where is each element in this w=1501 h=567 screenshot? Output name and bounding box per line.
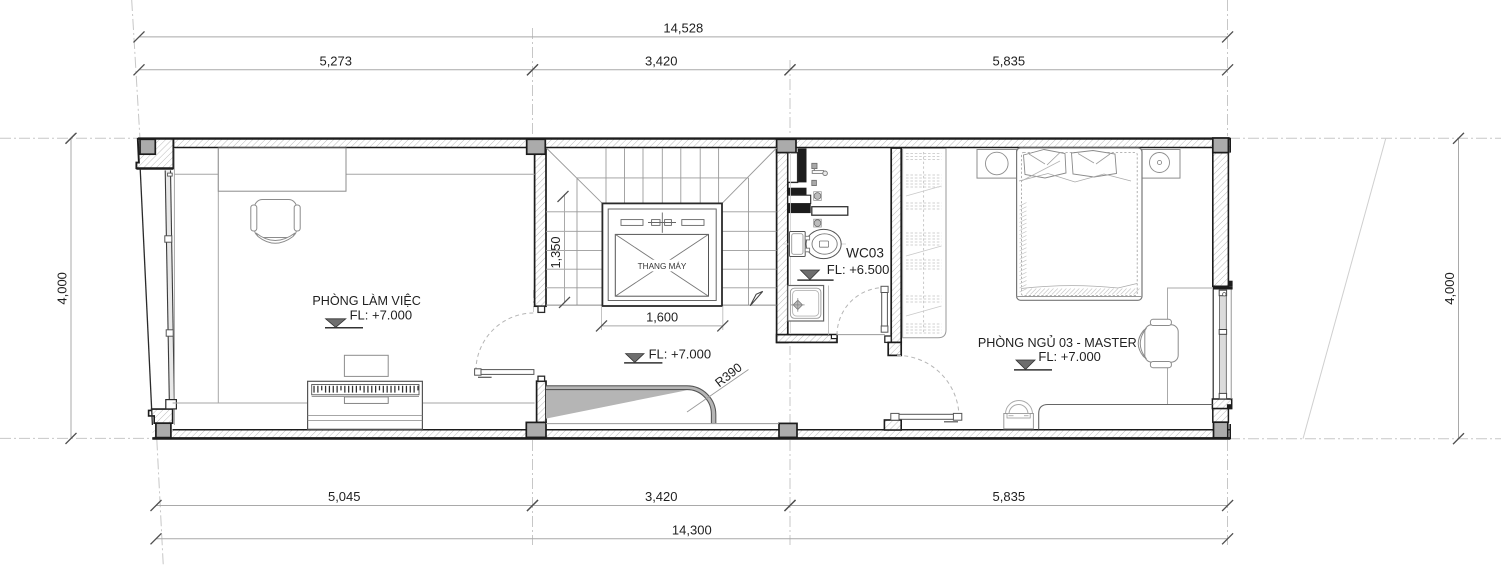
svg-text:1,600: 1,600 — [646, 309, 678, 324]
svg-text:FL: +7.000: FL: +7.000 — [1038, 349, 1101, 364]
svg-text:3,420: 3,420 — [645, 53, 678, 68]
svg-text:14,300: 14,300 — [672, 522, 712, 537]
svg-text:R390: R390 — [712, 360, 744, 390]
svg-text:4,000: 4,000 — [1442, 272, 1457, 305]
svg-text:PHÒNG LÀM VIỆC: PHÒNG LÀM VIỆC — [312, 293, 420, 308]
svg-text:3,420: 3,420 — [645, 489, 678, 504]
svg-text:THANG MÁY: THANG MÁY — [638, 261, 687, 271]
svg-text:5,273: 5,273 — [319, 53, 352, 68]
svg-text:5,835: 5,835 — [993, 53, 1026, 68]
svg-text:5,835: 5,835 — [993, 489, 1026, 504]
svg-text:FL: +6.500: FL: +6.500 — [827, 262, 890, 277]
svg-text:FL: +7.000: FL: +7.000 — [350, 308, 413, 323]
svg-text:PHÒNG NGỦ 03 - MASTER: PHÒNG NGỦ 03 - MASTER — [978, 335, 1137, 350]
svg-text:5,045: 5,045 — [328, 489, 361, 504]
svg-text:14,528: 14,528 — [663, 20, 703, 35]
svg-text:WC03: WC03 — [846, 246, 884, 261]
svg-text:4,000: 4,000 — [55, 272, 70, 305]
svg-text:1,350: 1,350 — [548, 236, 563, 268]
svg-text:FL: +7.000: FL: +7.000 — [649, 346, 712, 361]
